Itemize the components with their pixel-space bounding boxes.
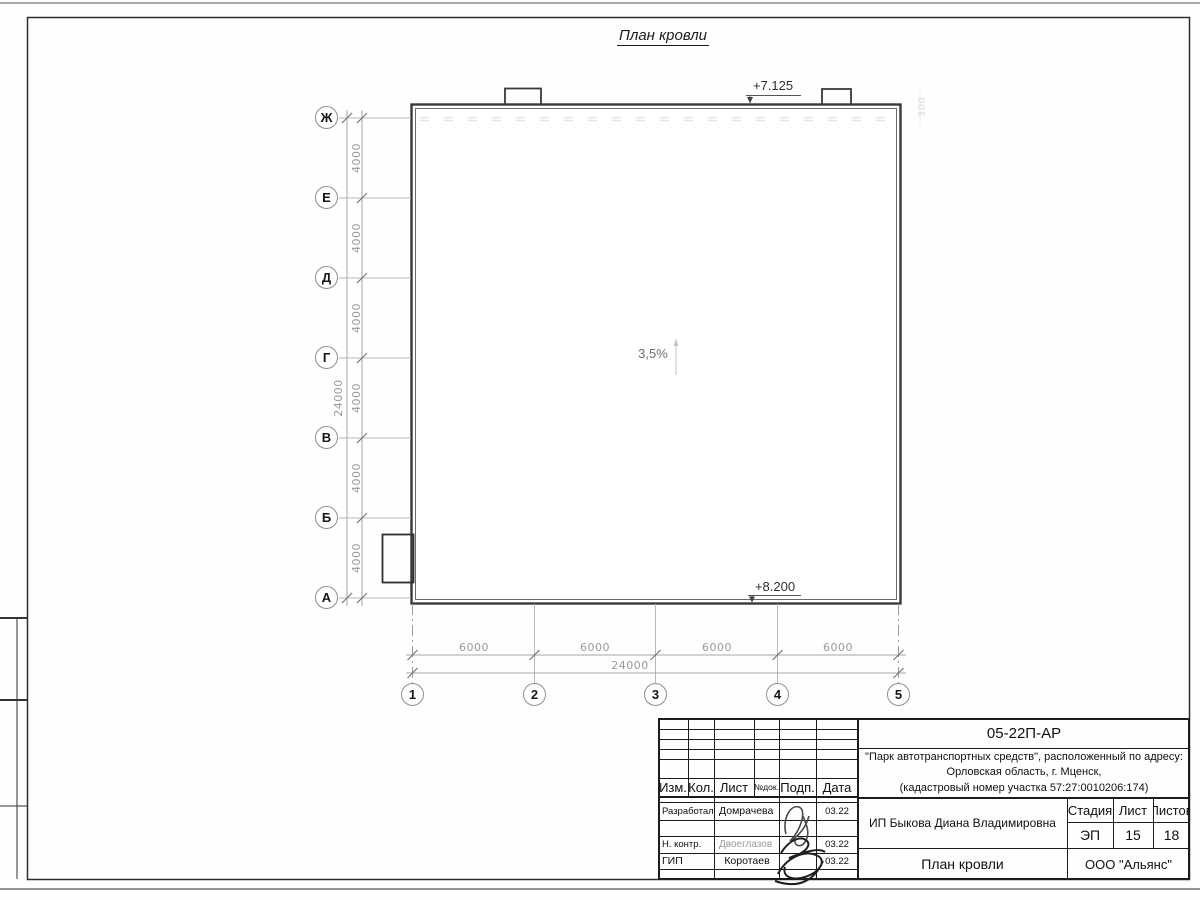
signatures <box>0 0 1200 900</box>
drawing-sheet: План кровли +7.125 +8.200 3,5% 300 Ж Е Д… <box>0 0 1200 900</box>
